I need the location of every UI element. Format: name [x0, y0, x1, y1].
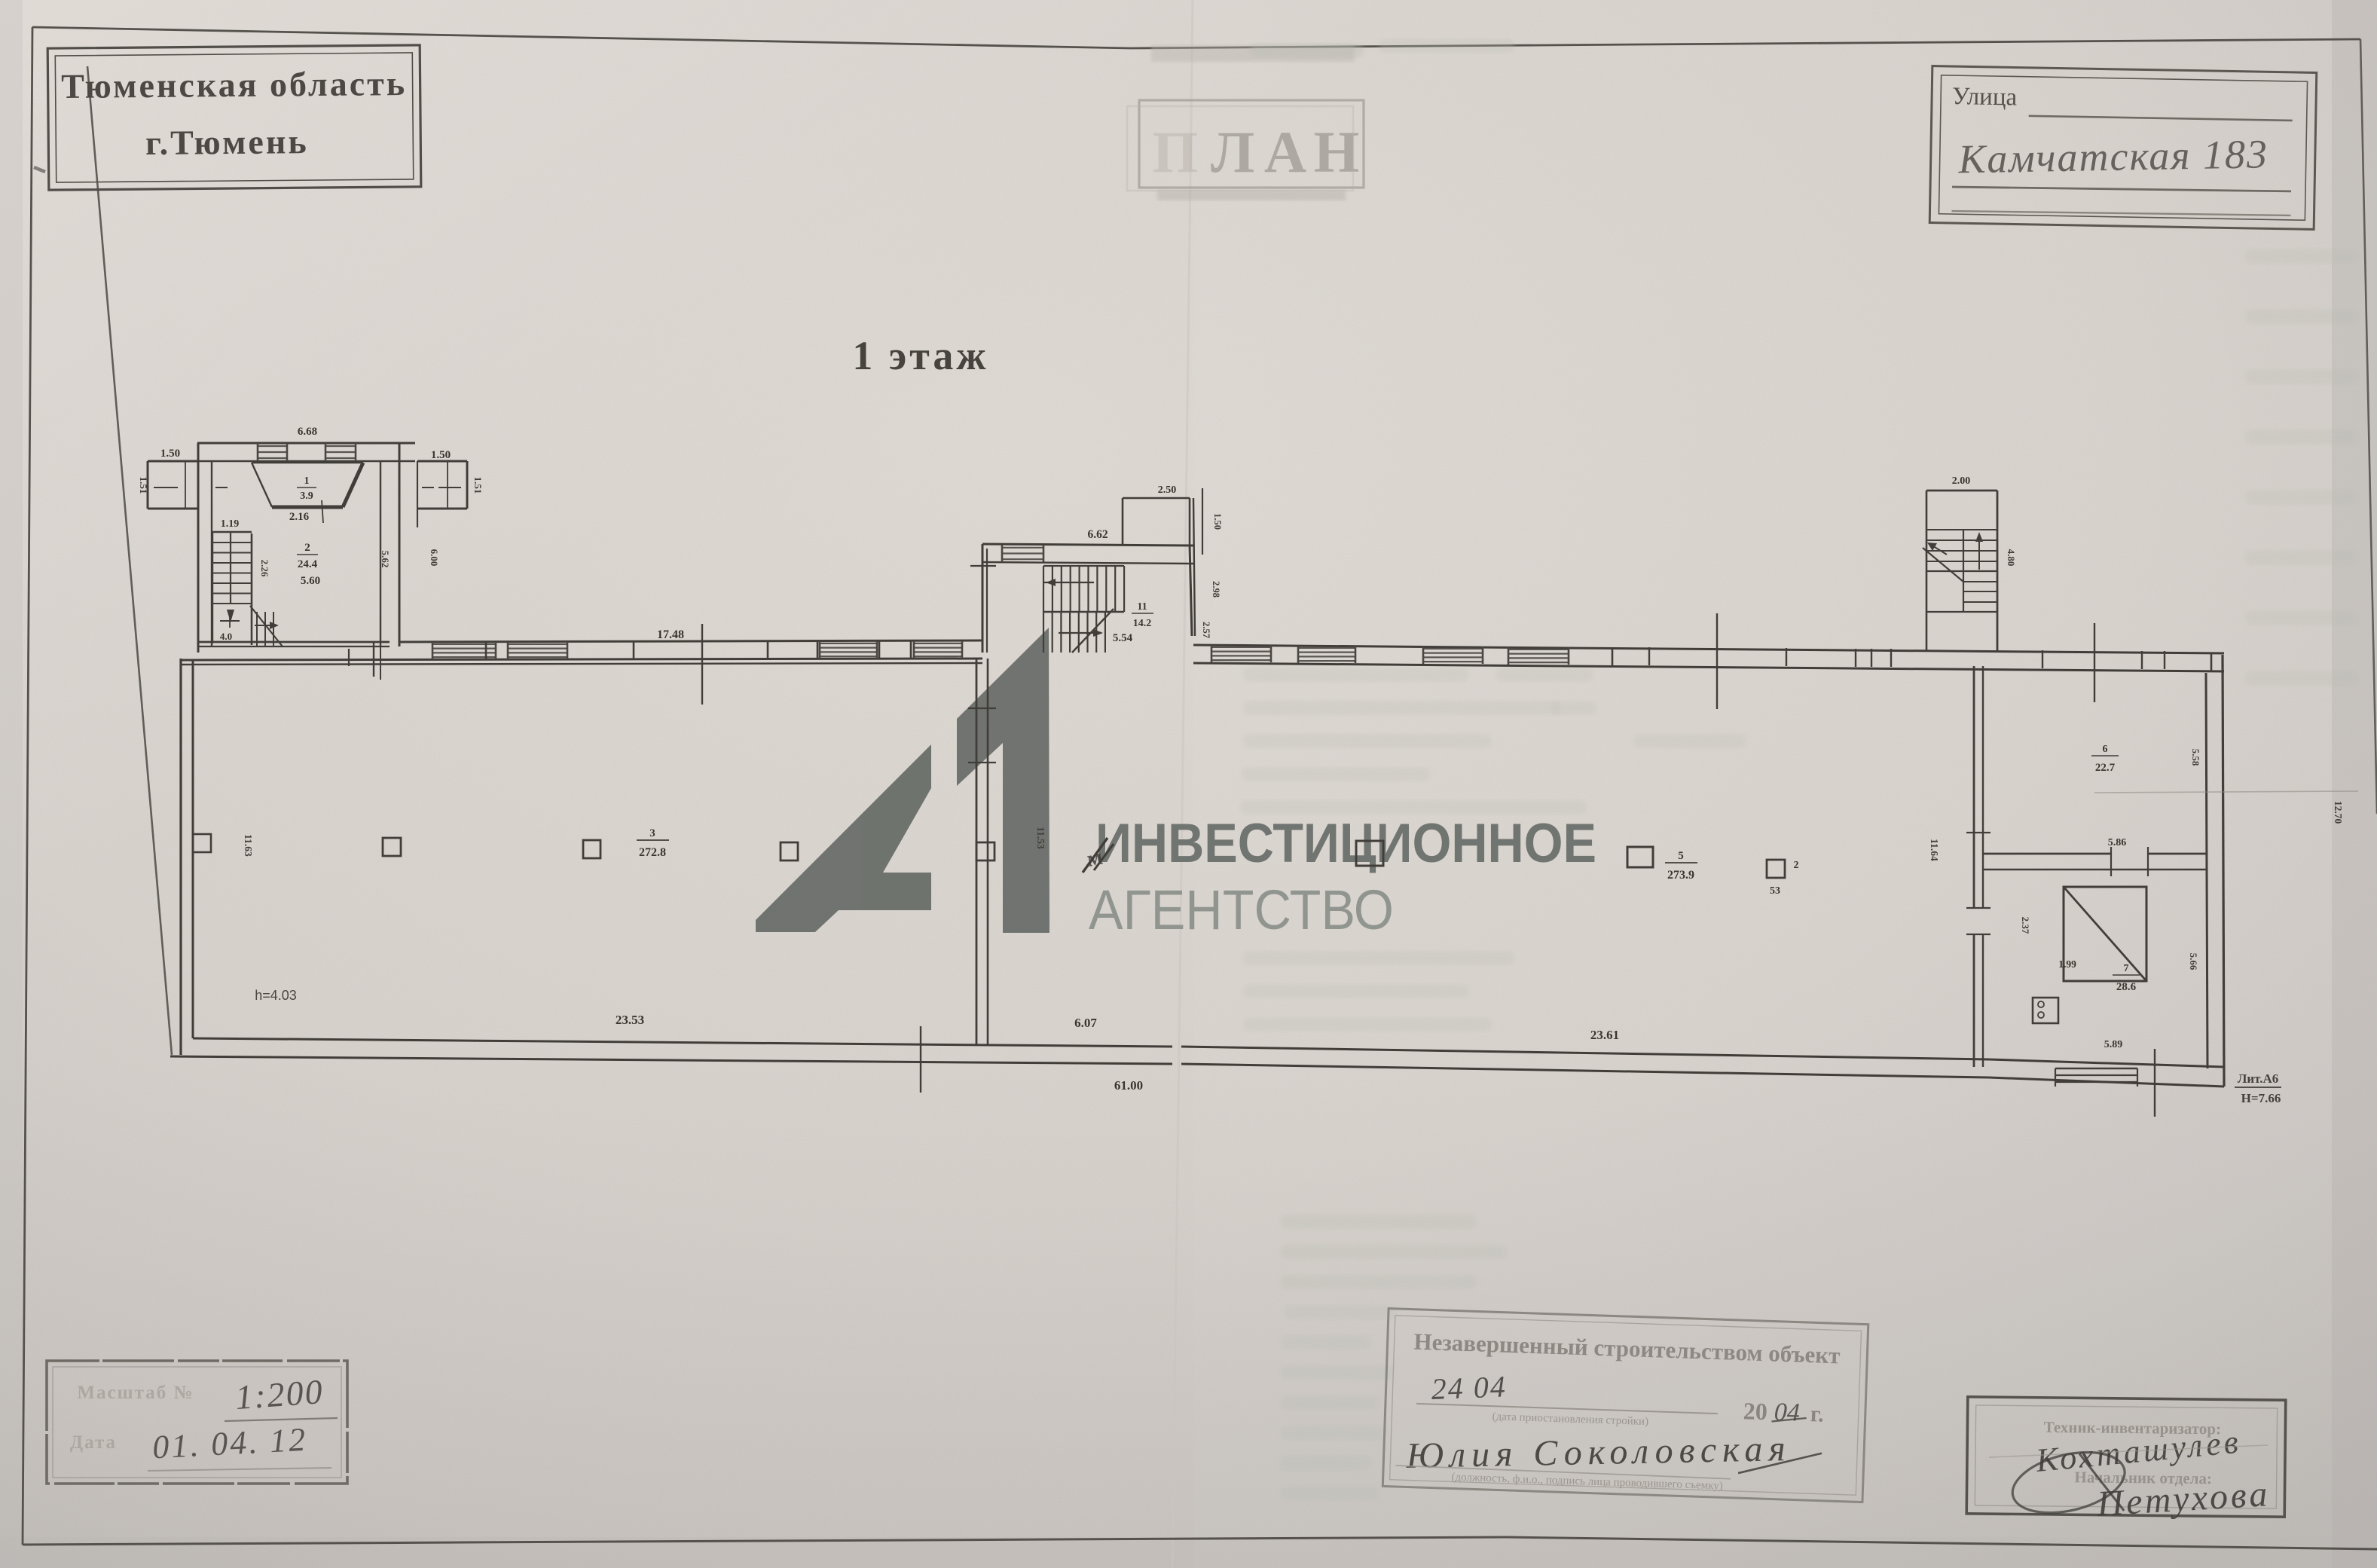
svg-text:6.62: 6.62 [1087, 528, 1108, 541]
svg-text:23.61: 23.61 [1590, 1028, 1619, 1042]
svg-text:2.26: 2.26 [259, 560, 270, 577]
svg-text:23.53: 23.53 [616, 1013, 644, 1027]
svg-text:1.50: 1.50 [160, 448, 180, 460]
svg-text:1 этаж: 1 этаж [852, 333, 988, 378]
svg-text:5.58: 5.58 [2190, 749, 2201, 766]
svg-text:Камчатская 183: Камчатская 183 [1957, 131, 2269, 182]
svg-text:273.9: 273.9 [1667, 869, 1694, 882]
svg-text:2.16: 2.16 [289, 511, 310, 523]
svg-text:1.99: 1.99 [2058, 958, 2076, 970]
svg-text:Лит.А6: Лит.А6 [2238, 1071, 2279, 1086]
svg-text:24.4: 24.4 [298, 558, 318, 570]
svg-text:П: П [1153, 119, 1199, 185]
svg-text:Тюменская область: Тюменская область [61, 64, 407, 105]
svg-text:Улица: Улица [1952, 83, 2018, 112]
svg-text:Дата: Дата [70, 1432, 117, 1453]
svg-text:12.70: 12.70 [2333, 801, 2344, 824]
svg-text:1:200: 1:200 [234, 1372, 325, 1417]
svg-text:11: 11 [1137, 601, 1147, 613]
svg-text:А: А [1264, 119, 1306, 185]
svg-text:5: 5 [1678, 850, 1684, 862]
svg-text:14.2: 14.2 [1133, 618, 1152, 629]
svg-text:Л: Л [1211, 119, 1254, 185]
svg-text:2.37: 2.37 [2020, 917, 2031, 934]
svg-text:2.00: 2.00 [1952, 475, 1971, 487]
svg-text:04: 04 [1774, 1398, 1800, 1427]
svg-text:5.54: 5.54 [1113, 632, 1133, 644]
svg-text:28.6: 28.6 [2116, 981, 2137, 993]
svg-text:2: 2 [1794, 860, 1799, 871]
svg-text:ИНВЕСТИЦИОННОЕ: ИНВЕСТИЦИОННОЕ [1095, 813, 1596, 874]
svg-text:2: 2 [304, 542, 310, 554]
svg-text:1.19: 1.19 [221, 518, 240, 530]
svg-text:3.9: 3.9 [300, 491, 313, 502]
svg-text:2.50: 2.50 [1158, 484, 1177, 496]
svg-text:11.63: 11.63 [243, 834, 254, 857]
svg-text:1.50: 1.50 [1212, 513, 1223, 530]
svg-text:22.7: 22.7 [2095, 762, 2116, 774]
svg-text:Масштаб №: Масштаб № [77, 1383, 194, 1403]
svg-text:20: 20 [1743, 1397, 1767, 1425]
svg-text:3: 3 [649, 827, 655, 839]
svg-text:5.60: 5.60 [301, 575, 320, 587]
svg-text:6.68: 6.68 [298, 426, 317, 438]
svg-text:4.0: 4.0 [220, 631, 232, 642]
svg-text:1.51: 1.51 [472, 477, 484, 494]
svg-text:61.00: 61.00 [1114, 1078, 1143, 1093]
svg-text:4.80: 4.80 [2006, 549, 2017, 567]
svg-text:6: 6 [2103, 744, 2108, 755]
svg-text:Н=7.66: Н=7.66 [2241, 1091, 2281, 1105]
svg-text:6.00: 6.00 [429, 549, 440, 567]
svg-text:h=4.03: h=4.03 [255, 988, 297, 1003]
svg-text:1.50: 1.50 [431, 449, 451, 461]
svg-text:7: 7 [2124, 963, 2129, 974]
svg-text:г.Тюмень: г.Тюмень [145, 122, 309, 162]
svg-text:6.07: 6.07 [1074, 1016, 1097, 1030]
svg-text:53: 53 [1770, 885, 1780, 897]
svg-text:2.57: 2.57 [1201, 622, 1211, 638]
svg-text:2.98: 2.98 [1211, 581, 1221, 598]
svg-text:11.64: 11.64 [1929, 839, 1940, 861]
svg-text:5.86: 5.86 [2108, 837, 2127, 848]
svg-text:г.: г. [1810, 1401, 1824, 1427]
svg-text:24 04: 24 04 [1431, 1369, 1508, 1406]
svg-text:11.53: 11.53 [1035, 827, 1046, 849]
svg-text:272.8: 272.8 [639, 846, 666, 859]
svg-text:5.66: 5.66 [2188, 953, 2199, 970]
svg-text:5.89: 5.89 [2104, 1039, 2123, 1050]
svg-text:17.48: 17.48 [657, 628, 684, 641]
svg-text:5.62: 5.62 [380, 551, 391, 568]
svg-text:1: 1 [304, 475, 310, 487]
svg-text:АГЕНТСТВО: АГЕНТСТВО [1089, 879, 1394, 941]
svg-text:1.51: 1.51 [138, 477, 149, 494]
